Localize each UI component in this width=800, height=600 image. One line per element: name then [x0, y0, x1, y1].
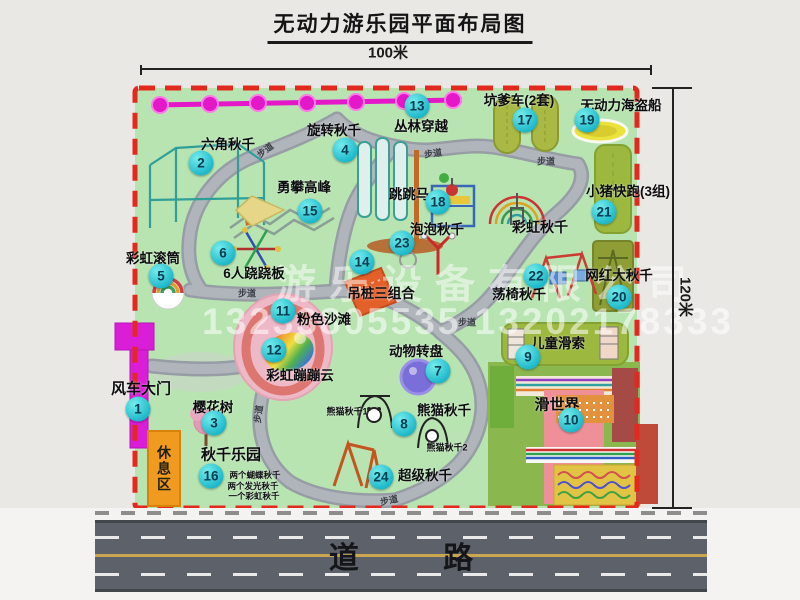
- internet-swing-icon: [593, 241, 633, 311]
- road-label: 道 路: [291, 533, 511, 577]
- slide-world-icon: [488, 362, 658, 506]
- page-title: 无动力游乐园平面布局图: [268, 8, 533, 44]
- road-zone: 道 路: [0, 508, 800, 600]
- road: 道 路: [95, 520, 707, 592]
- width-dimension-line: [140, 68, 652, 70]
- rainbow-roller-icon: [152, 277, 184, 309]
- height-dimension-line: [672, 88, 674, 508]
- height-dimension-label: 120米: [676, 277, 697, 317]
- width-dimension-label: 100米: [368, 42, 408, 63]
- rest-area: 休息区: [147, 430, 181, 507]
- pink-beach-icon: [234, 294, 332, 400]
- piggy-run-icon: [595, 145, 631, 233]
- sidewalk-dashes: [95, 511, 707, 515]
- kids-zipline-icon: [502, 323, 628, 365]
- pirate-ship-icon: [573, 120, 627, 142]
- park-layout-plan: 无动力游乐园平面布局图 100米 120米: [0, 0, 800, 600]
- animal-turntable-icon: [401, 360, 435, 394]
